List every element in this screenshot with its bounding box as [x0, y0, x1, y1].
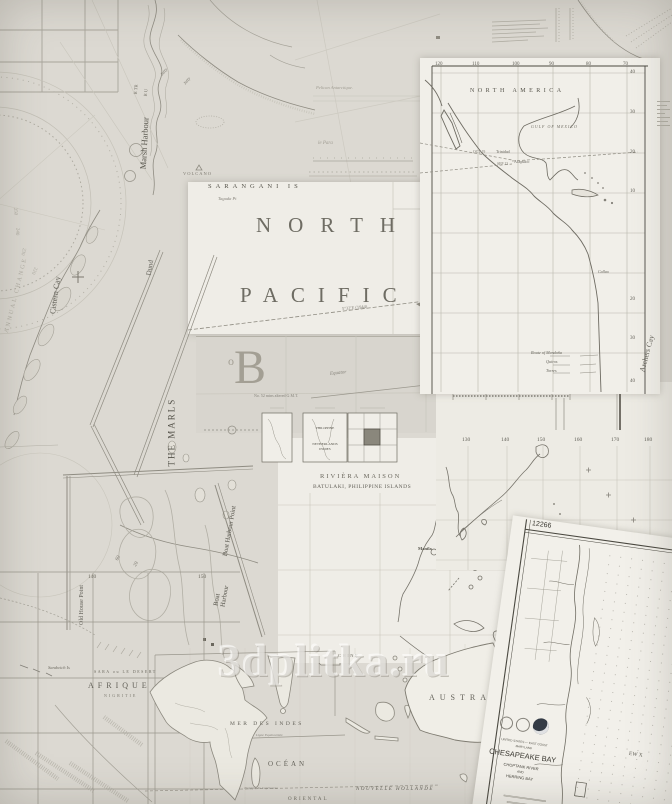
- japan-lon-140: 140: [501, 438, 509, 444]
- japan-lon-130: 130: [462, 438, 470, 444]
- japan-lon-170: 170: [611, 438, 619, 444]
- nigritie-label: NIGRITIE: [104, 694, 137, 698]
- volcano-label: VOLCANO: [183, 172, 212, 177]
- faint-chart-fragment: [295, 0, 440, 195]
- index-inset-boxes: [260, 405, 400, 465]
- inset-netherlands: NETHERLANDS: [303, 443, 347, 447]
- index-b: B: [234, 341, 266, 394]
- na-lat-s40: 40: [630, 379, 635, 384]
- na-lat-20: 20: [630, 150, 635, 155]
- tropique-label: Tropique du Capricorne: [244, 787, 278, 791]
- index-note: No. 52 mins altered G.M.T.: [254, 394, 298, 398]
- inset-philippine: PHILIPPINE: [303, 427, 347, 431]
- north-america-title: NORTH AMERICA: [470, 88, 565, 94]
- pacific-word-pacific: PACIFIC: [240, 285, 410, 306]
- manila-label: Manila: [418, 547, 432, 552]
- afrique-label: AFRIQUE: [88, 682, 151, 690]
- track-oct19: OCT 19: [473, 151, 485, 155]
- inset-indies: INDIES: [303, 448, 347, 452]
- gulf-of-mexico-label: GULF OF MEXICO: [531, 125, 578, 129]
- na-lat-30: 30: [630, 110, 635, 115]
- na-lat-s30: 30: [630, 336, 635, 341]
- grid-150-label: 150: [198, 575, 206, 581]
- nouvelle-hollande-label: NOUVELLE HOLLANDE: [356, 787, 434, 792]
- riviera-brand: RIVIÈRA MAISON: [320, 474, 401, 481]
- route-legend-1: Route of Mendaña: [531, 351, 562, 355]
- beacon-label-2: R U: [144, 89, 149, 97]
- track-trinidad: Trinidad: [496, 150, 510, 154]
- wallpaper-chart-collage: ANNUAL CHANGE 220 230 240 250 Marsh Harb…: [0, 0, 672, 804]
- na-lat-40: 40: [630, 70, 635, 75]
- pacific-word-north: NORTH: [256, 215, 412, 236]
- north-america-chart: [420, 58, 660, 394]
- mer-des-indes-label: MER DES INDES: [230, 722, 304, 728]
- track-sep13: SEP 13: [497, 163, 508, 167]
- oriental-label: ORIENTAL: [288, 797, 329, 802]
- na-lat-10: 10: [630, 189, 635, 194]
- ligne-label: Ligne Equinoctiale: [256, 734, 283, 738]
- route-legend-2: Quiros: [546, 360, 557, 364]
- grid-140-label: 140: [88, 575, 96, 581]
- route-legend-3: Torres: [546, 369, 557, 373]
- marsh-harbour-chart: [60, 0, 330, 200]
- ocean-label: OCÉAN: [268, 761, 307, 768]
- le-para-label: le Para: [318, 141, 333, 146]
- site-watermark: 3dplitka.ru: [218, 634, 450, 687]
- japan-lon-160: 160: [574, 438, 582, 444]
- top-edge-fragments: [428, 0, 672, 62]
- japan-lon-150: 150: [537, 438, 545, 444]
- na-lon-80: 80: [586, 62, 591, 67]
- right-edge-legend: [657, 98, 670, 129]
- na-lon-70: 70: [623, 62, 628, 67]
- sarangani-label: SARANGANI IS: [208, 184, 302, 191]
- na-lon-120: 120: [435, 62, 443, 67]
- na-lon-110: 110: [472, 62, 479, 67]
- na-lon-90: 90: [549, 62, 554, 67]
- na-lat-s20: 20: [630, 297, 635, 302]
- callao-label: Callao: [598, 270, 609, 274]
- index-letter-b: oB: [228, 344, 266, 392]
- na-lon-100: 100: [512, 62, 520, 67]
- riviera-title: BATULAKI, PHILIPPINE ISLANDS: [313, 485, 411, 491]
- sara-desert-label: SARA ou LE DESERT: [94, 670, 157, 674]
- beacon-label: R TR: [134, 84, 139, 94]
- sandwich-label: Sandwich Is: [48, 666, 70, 671]
- antarctique-label: Pelican Antarctique.: [316, 86, 353, 91]
- japan-lon-180: 180: [644, 438, 652, 444]
- track-acapulco: Acapulco: [514, 160, 529, 164]
